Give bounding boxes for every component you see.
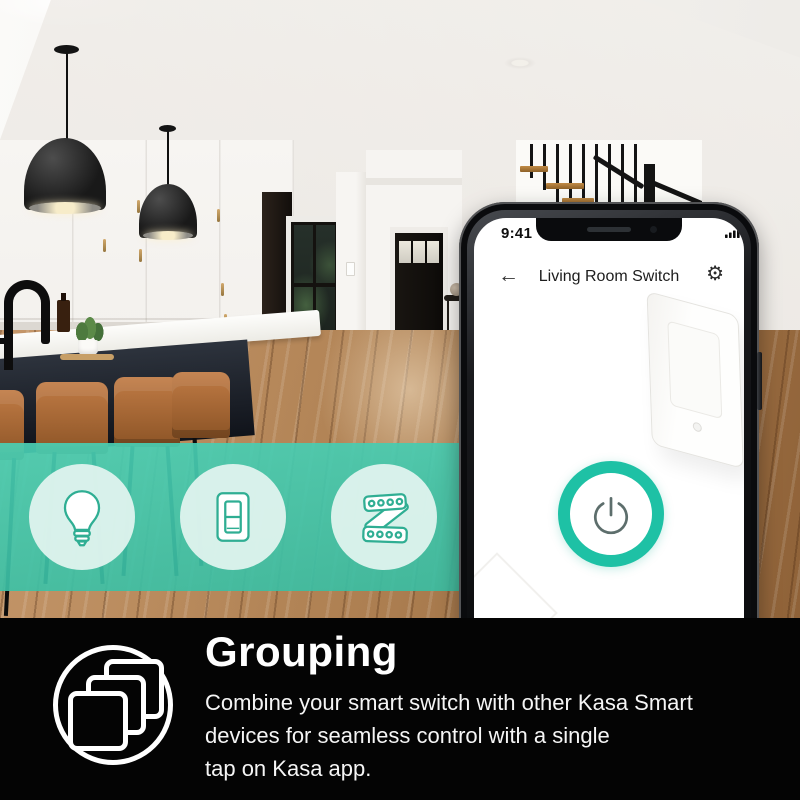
screen-watermark (474, 552, 558, 618)
pendant-canopy (54, 45, 79, 54)
cabinet-handle (139, 249, 142, 262)
stair-baluster (530, 144, 533, 178)
device-title: Living Room Switch (474, 268, 744, 286)
feature-text-panel: Grouping Combine your smart switch with … (0, 618, 800, 800)
kitchen-photo: 9:41 (0, 0, 800, 618)
pendant-canopy (159, 125, 176, 132)
power-button[interactable] (558, 461, 664, 567)
bar-stool (114, 377, 180, 447)
feature-description-line: devices for seamless control with a sing… (205, 723, 765, 749)
signal-bars-icon (725, 229, 740, 239)
front-camera (650, 226, 657, 233)
smart-switch-photo (647, 291, 744, 525)
phone-side-button (757, 352, 762, 410)
faucet-spout (41, 328, 50, 344)
kasa-app-screen: 9:41 (474, 218, 744, 618)
plant-pot (78, 340, 98, 355)
hallway-header-beam (366, 178, 462, 185)
cabinet-handle (217, 209, 220, 222)
phone-notch (536, 218, 682, 241)
front-door-windows (399, 241, 439, 263)
bar-stool (172, 372, 230, 438)
smart-switch-icon (180, 464, 286, 570)
stair-tread (546, 183, 584, 189)
led-light-strip-icon (331, 464, 437, 570)
cabinet-handle (221, 283, 224, 296)
soap-bottle (57, 300, 70, 332)
feature-title: Grouping (205, 628, 398, 676)
wall-light-switch (346, 262, 355, 276)
smartphone: 9:41 (459, 202, 759, 618)
wood-serving-board (60, 354, 114, 360)
soap-bottle-neck (61, 293, 66, 301)
black-faucet (4, 280, 50, 332)
smart-bulb-icon (29, 464, 135, 570)
pendant-cord (66, 52, 68, 142)
stair-tread (520, 166, 548, 172)
counter-plant (74, 316, 104, 342)
feature-description-line: Combine your smart switch with other Kas… (205, 690, 765, 716)
faucet-stem (4, 330, 13, 370)
feature-description-line: tap on Kasa app. (205, 756, 765, 782)
cabinet-handle (103, 239, 106, 252)
pendant-light-glow (29, 202, 101, 214)
power-icon (588, 491, 634, 537)
layer-square-front (68, 691, 128, 751)
faucet-handle (0, 338, 12, 344)
status-time: 9:41 (501, 225, 532, 242)
speaker-slot (587, 227, 631, 232)
stair-baluster (556, 144, 559, 202)
pendant-light-glow (143, 231, 193, 240)
grouping-icon (53, 645, 173, 765)
app-header: Living Room Switch (474, 262, 744, 296)
pendant-cord (167, 130, 169, 190)
gear-icon[interactable] (706, 264, 724, 284)
product-marketing-image: 9:41 (0, 0, 800, 800)
teal-feature-band (0, 443, 462, 591)
switch-button (667, 320, 722, 419)
